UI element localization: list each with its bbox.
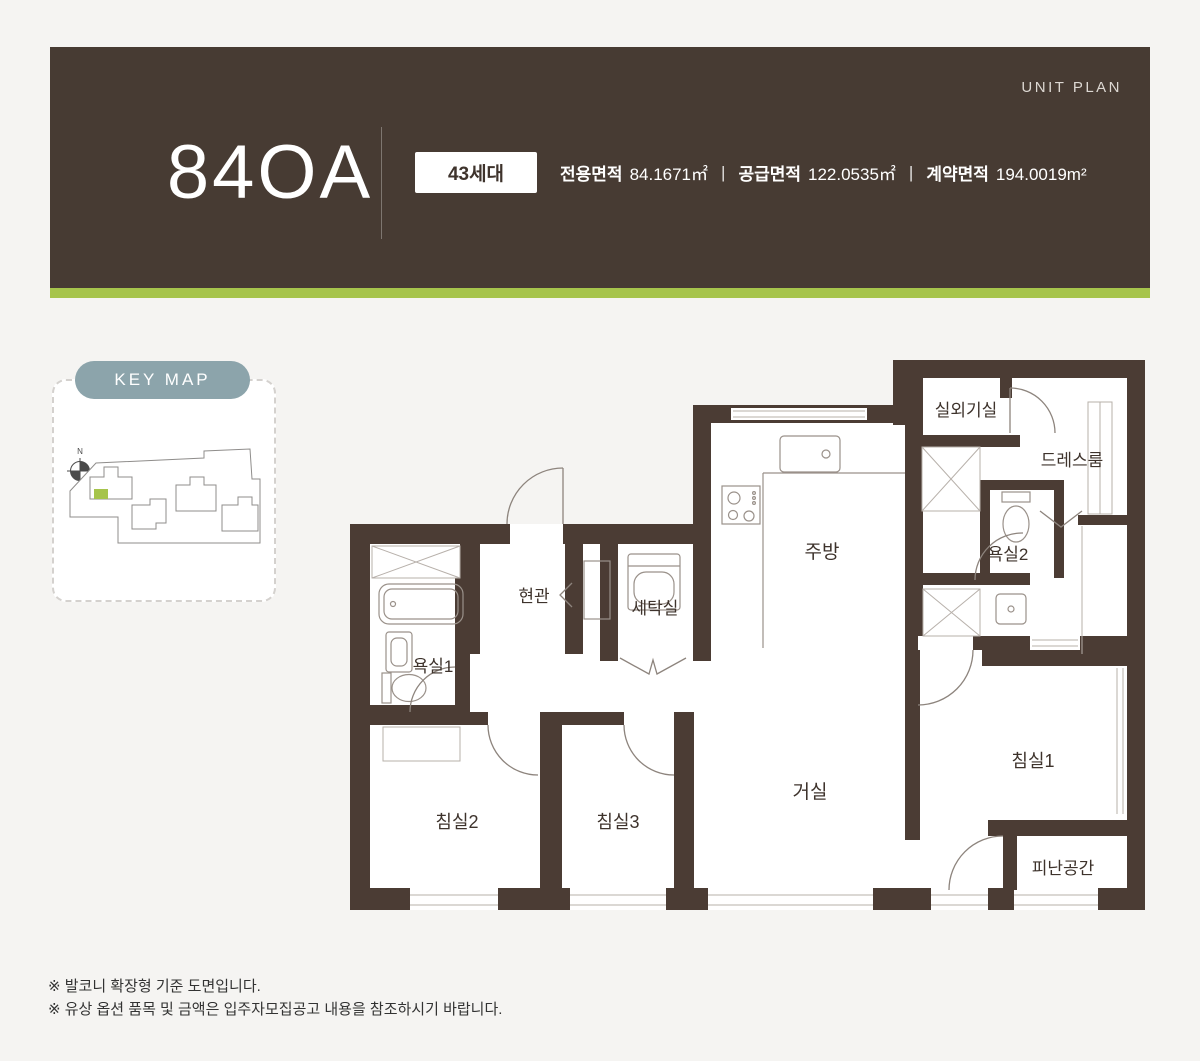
area-item-exclusive: 전용면적84.1671㎡: [560, 160, 708, 185]
room-label-entrance: 현관: [518, 587, 549, 606]
accent-stripe: [50, 288, 1150, 298]
header-banner: UNIT PLAN 84OA 43세대 전용면적84.1671㎡ | 공급면적1…: [50, 47, 1150, 288]
room-label-bath2: 욕실2: [988, 545, 1029, 564]
note-line: ※ 유상 옵션 품목 및 금액은 입주자모집공고 내용을 참조하시기 바랍니다.: [48, 998, 502, 1021]
area-item-supply: 공급면적122.0535㎡: [738, 160, 895, 185]
keymap-badge: KEY MAP: [75, 361, 250, 399]
floorplan-drawing: 실외기실 드레스룸 욕실2 주방 현관 세탁실 욕실1 침실2 침실3 거실 침…: [348, 356, 1148, 921]
room-label-bed3: 침실3: [596, 812, 639, 832]
area-separator: |: [909, 163, 913, 183]
note-line: ※ 발코니 확장형 기준 도면입니다.: [48, 975, 502, 998]
area-info: 전용면적84.1671㎡ | 공급면적122.0535㎡ | 계약면적194.0…: [560, 152, 1087, 193]
room-label-kitchen: 주방: [805, 541, 840, 563]
header-divider: [381, 127, 382, 239]
room-label-outdoor-unit: 실외기실: [935, 401, 998, 420]
room-label-bed1: 침실1: [1011, 751, 1054, 771]
site-map: N: [54, 393, 274, 593]
room-label-bath1: 욕실1: [413, 657, 454, 676]
room-label-bed2: 침실2: [435, 812, 478, 832]
household-count-badge: 43세대: [415, 152, 537, 193]
area-item-contract: 계약면적194.0019m²: [926, 160, 1086, 185]
area-separator: |: [721, 163, 725, 183]
floorplan: 실외기실 드레스룸 욕실2 주방 현관 세탁실 욕실1 침실2 침실3 거실 침…: [348, 356, 1148, 921]
room-label-living: 거실: [793, 781, 828, 803]
footer-notes: ※ 발코니 확장형 기준 도면입니다. ※ 유상 옵션 품목 및 금액은 입주자…: [48, 975, 502, 1022]
keymap-panel: N: [52, 379, 276, 602]
unit-plan-label: UNIT PLAN: [1021, 79, 1122, 96]
unit-plan-page: { "header": { "unit_plan_label": "UNIT P…: [0, 0, 1200, 1061]
entry-door-arc: [507, 468, 563, 524]
room-label-refuge: 피난공간: [1032, 859, 1095, 878]
room-label-laundry: 세탁실: [632, 599, 679, 618]
compass-north-label: N: [77, 447, 83, 456]
room-label-dressroom: 드레스룸: [1041, 451, 1104, 470]
unit-location-highlight: [94, 489, 108, 499]
